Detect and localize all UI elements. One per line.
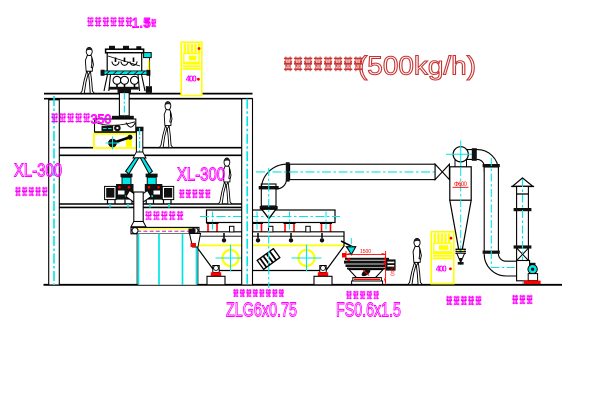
svg-text:XL-300: XL-300: [14, 160, 62, 181]
svg-text:1500: 1500: [360, 249, 371, 255]
svg-text:XL-300: XL-300: [177, 164, 225, 185]
svg-text:ZLG6x0.75: ZLG6x0.75: [226, 299, 297, 322]
svg-text:400: 400: [436, 264, 448, 273]
svg-text:FS0.6x1.5: FS0.6x1.5: [336, 299, 401, 322]
svg-text:(500kg/h): (500kg/h): [358, 51, 476, 81]
svg-text:540: 540: [389, 267, 395, 276]
svg-text:350: 350: [91, 113, 112, 127]
svg-text:400: 400: [186, 75, 198, 84]
